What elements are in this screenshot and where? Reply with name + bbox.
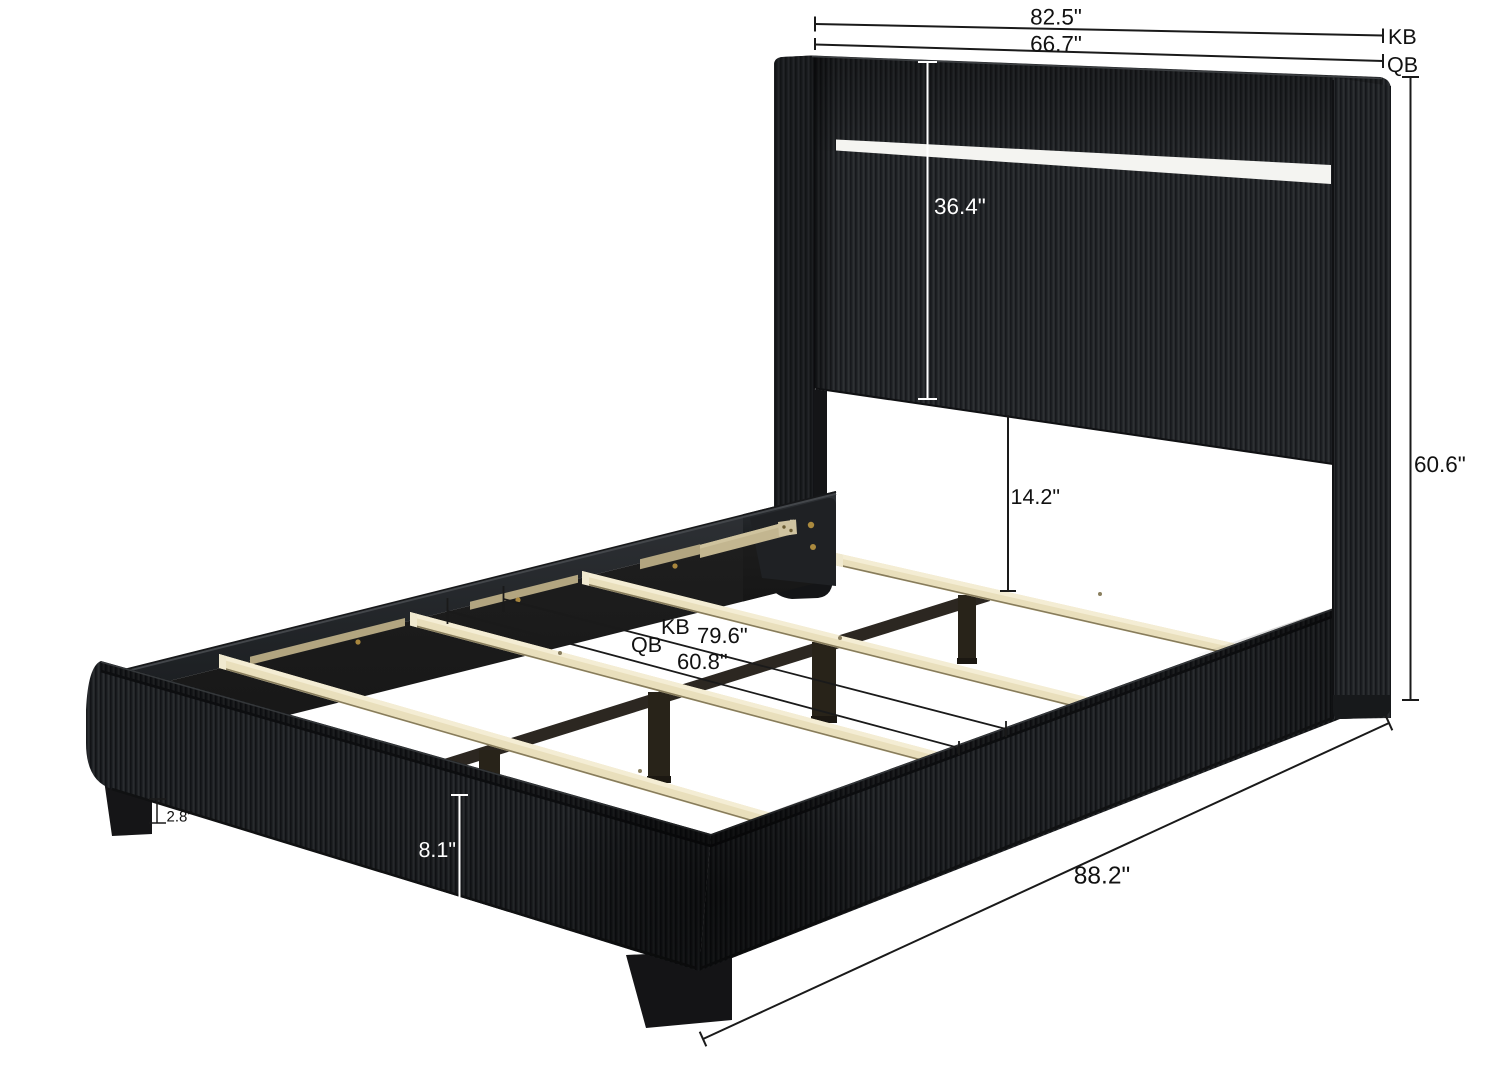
svg-text:2.8": 2.8" [167,809,193,826]
svg-text:QB: QB [631,633,662,657]
svg-text:36.4": 36.4" [934,194,986,219]
svg-text:60.6": 60.6" [1414,452,1466,477]
svg-text:KB: KB [661,615,690,639]
svg-text:60.8": 60.8" [677,649,728,674]
svg-text:QB: QB [1387,53,1418,77]
svg-text:82.5": 82.5" [1030,5,1082,30]
svg-text:66.7": 66.7" [1030,32,1082,57]
svg-text:14.2": 14.2" [1011,485,1060,509]
svg-text:88.2": 88.2" [1074,863,1130,890]
svg-text:79.6": 79.6" [697,623,748,648]
svg-text:KB: KB [1388,25,1417,49]
svg-text:8.1": 8.1" [418,838,456,862]
